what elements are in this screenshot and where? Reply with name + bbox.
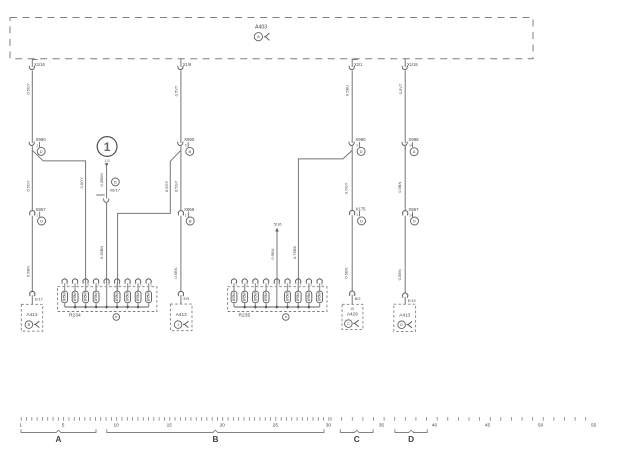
svg-text:J: J xyxy=(177,323,179,327)
svg-text:1R5W: 1R5W xyxy=(264,292,268,302)
svg-text:D: D xyxy=(114,179,117,184)
svg-text:0.5BU: 0.5BU xyxy=(345,85,350,96)
svg-text:0.5GY: 0.5GY xyxy=(26,180,31,192)
svg-text:0.5BN: 0.5BN xyxy=(397,182,402,193)
svg-text:1: 1 xyxy=(356,213,358,217)
svg-text:A403: A403 xyxy=(255,24,267,30)
svg-text:0.5BN: 0.5BN xyxy=(25,266,30,277)
svg-text:X990: X990 xyxy=(184,137,195,142)
svg-text:5: 5 xyxy=(62,423,65,429)
svg-text:0.35BN: 0.35BN xyxy=(99,173,104,186)
svg-text:A: A xyxy=(413,149,416,154)
svg-text:1R5W: 1R5W xyxy=(115,292,119,302)
svg-text:55: 55 xyxy=(591,423,597,429)
svg-text:R235: R235 xyxy=(239,312,251,318)
svg-text:X867: X867 xyxy=(36,207,47,212)
svg-text:3: 3 xyxy=(87,283,89,287)
svg-text:30: 30 xyxy=(326,423,332,429)
svg-text:B/2: B/2 xyxy=(355,297,361,301)
svg-text:0.5GY: 0.5GY xyxy=(173,180,178,192)
svg-text:1: 1 xyxy=(36,143,38,147)
svg-text:0.5VT: 0.5VT xyxy=(398,83,403,94)
svg-text:X990: X990 xyxy=(355,137,366,142)
svg-text:40: 40 xyxy=(432,423,438,429)
svg-text:15: 15 xyxy=(350,307,354,311)
svg-text:1: 1 xyxy=(104,140,111,154)
svg-text:0.5BN: 0.5BN xyxy=(270,248,275,259)
svg-text:1R5W: 1R5W xyxy=(318,292,322,302)
svg-text:0.5BN: 0.5BN xyxy=(173,267,178,278)
svg-text:10: 10 xyxy=(114,423,120,429)
svg-text:1R5W: 1R5W xyxy=(243,292,247,302)
svg-text:X2/1: X2/1 xyxy=(354,62,363,67)
svg-text:0.5GY: 0.5GY xyxy=(164,180,169,192)
svg-text:b: b xyxy=(115,315,117,319)
svg-text:3: 3 xyxy=(257,283,259,287)
svg-text:50: 50 xyxy=(538,423,544,429)
svg-text:1: 1 xyxy=(19,423,22,429)
svg-text:5/16: 5/16 xyxy=(274,221,283,226)
svg-text:1R5W: 1R5W xyxy=(126,292,130,302)
svg-text:B: B xyxy=(28,323,31,327)
svg-text:D: D xyxy=(40,149,43,154)
svg-text:4: 4 xyxy=(98,283,100,287)
svg-text:0.5GY: 0.5GY xyxy=(79,177,84,189)
svg-text:1R5W: 1R5W xyxy=(285,292,289,302)
svg-text:0.75BK: 0.75BK xyxy=(292,246,297,259)
svg-text:1R5W: 1R5W xyxy=(84,292,88,302)
svg-text:b: b xyxy=(285,315,287,319)
svg-text:1: 1 xyxy=(36,213,38,217)
svg-text:A413: A413 xyxy=(27,312,38,317)
svg-text:D: D xyxy=(40,218,43,223)
svg-text:A: A xyxy=(56,435,62,444)
svg-text:E/17: E/17 xyxy=(35,297,43,301)
svg-text:D: D xyxy=(360,218,363,223)
svg-text:A413: A413 xyxy=(399,312,410,317)
svg-text:20: 20 xyxy=(220,423,226,429)
svg-text:7: 7 xyxy=(129,283,131,287)
svg-text:25: 25 xyxy=(273,423,279,429)
svg-text:a: a xyxy=(257,34,260,39)
svg-text:E/15: E/15 xyxy=(408,299,416,303)
svg-text:D: D xyxy=(360,149,363,154)
svg-text:X990: X990 xyxy=(36,137,47,142)
svg-text:C: C xyxy=(354,435,360,444)
svg-text:1R5W: 1R5W xyxy=(253,292,257,302)
svg-text:5: 5 xyxy=(185,143,187,147)
svg-text:0.5BN: 0.5BN xyxy=(343,267,348,278)
svg-text:1R5W: 1R5W xyxy=(136,292,140,302)
svg-text:1R5W: 1R5W xyxy=(94,292,98,302)
svg-text:0.5BN: 0.5BN xyxy=(397,269,402,280)
svg-text:3: 3 xyxy=(356,143,358,147)
svg-text:1R5W: 1R5W xyxy=(73,292,77,302)
svg-text:X6/17: X6/17 xyxy=(110,187,121,192)
svg-text:7: 7 xyxy=(300,283,302,287)
svg-text:0.5GY: 0.5GY xyxy=(26,83,31,95)
svg-text:1/3: 1/3 xyxy=(105,159,110,163)
svg-text:X998: X998 xyxy=(408,137,419,142)
svg-text:1R5W: 1R5W xyxy=(307,292,311,302)
svg-text:45: 45 xyxy=(485,423,491,429)
svg-text:R234: R234 xyxy=(69,312,81,318)
svg-text:X1/9: X1/9 xyxy=(183,62,192,67)
svg-text:1R5W: 1R5W xyxy=(63,292,67,302)
svg-text:1R5W: 1R5W xyxy=(296,292,300,302)
svg-text:X867: X867 xyxy=(408,207,419,212)
svg-text:X175: X175 xyxy=(355,207,366,212)
svg-text:D: D xyxy=(400,323,403,327)
svg-text:A413: A413 xyxy=(176,312,187,317)
svg-text:8: 8 xyxy=(140,283,142,287)
svg-text:1: 1 xyxy=(185,213,187,217)
svg-text:X969: X969 xyxy=(184,207,195,212)
svg-text:E/9: E/9 xyxy=(184,297,190,301)
svg-text:1R5W: 1R5W xyxy=(147,292,151,302)
svg-text:X1/16: X1/16 xyxy=(34,62,45,67)
svg-text:B: B xyxy=(189,218,192,223)
svg-text:C: C xyxy=(347,322,350,326)
svg-text:D: D xyxy=(408,435,414,444)
svg-text:D: D xyxy=(413,218,416,223)
svg-text:B: B xyxy=(188,149,191,154)
svg-text:B: B xyxy=(212,435,218,444)
svg-text:15: 15 xyxy=(167,423,173,429)
svg-text:4: 4 xyxy=(268,283,270,287)
svg-text:0.5VT: 0.5VT xyxy=(173,85,178,96)
svg-text:1R5W: 1R5W xyxy=(232,292,236,302)
svg-text:X1/15: X1/15 xyxy=(407,62,418,67)
svg-text:A429: A429 xyxy=(347,312,358,317)
svg-text:0.35BN: 0.35BN xyxy=(99,246,104,259)
svg-text:35: 35 xyxy=(379,423,385,429)
svg-text:0.5GY: 0.5GY xyxy=(343,182,348,194)
